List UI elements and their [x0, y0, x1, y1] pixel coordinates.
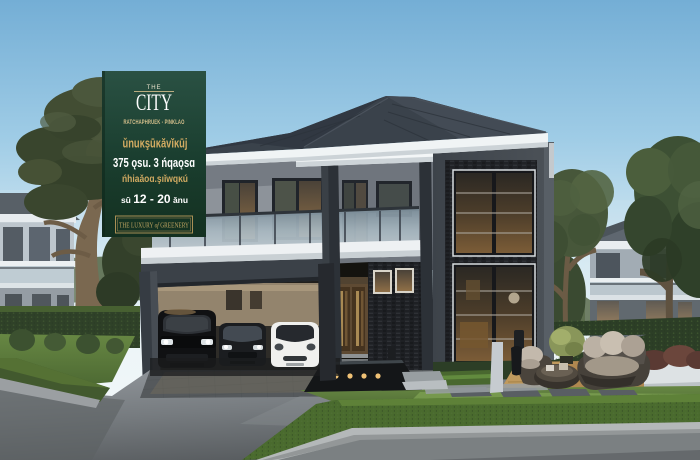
svg-text:ǔnuĸşūĸăvĭĸūj: ǔnuĸşūĸăvĭĸūj — [123, 136, 188, 151]
svg-text:CITY: CITY — [136, 90, 172, 116]
svg-text:THE LUXURY of GREENERY: THE LUXURY of GREENERY — [119, 222, 189, 230]
svg-text:RATCHAPHRUEK - PINKLAO: RATCHAPHRUEK - PINKLAO — [124, 120, 185, 126]
svg-text:ńhiaǎoɑ.şıǐwqĸú: ńhiaǎoɑ.şıǐwqĸú — [122, 173, 188, 185]
svg-text:375 ǫsu. 3 ńqaǫsɑ: 375 ǫsu. 3 ńqaǫsɑ — [113, 156, 195, 170]
svg-text:sū 12 - 20 ǎnu: sū 12 - 20 ǎnu — [121, 192, 188, 206]
